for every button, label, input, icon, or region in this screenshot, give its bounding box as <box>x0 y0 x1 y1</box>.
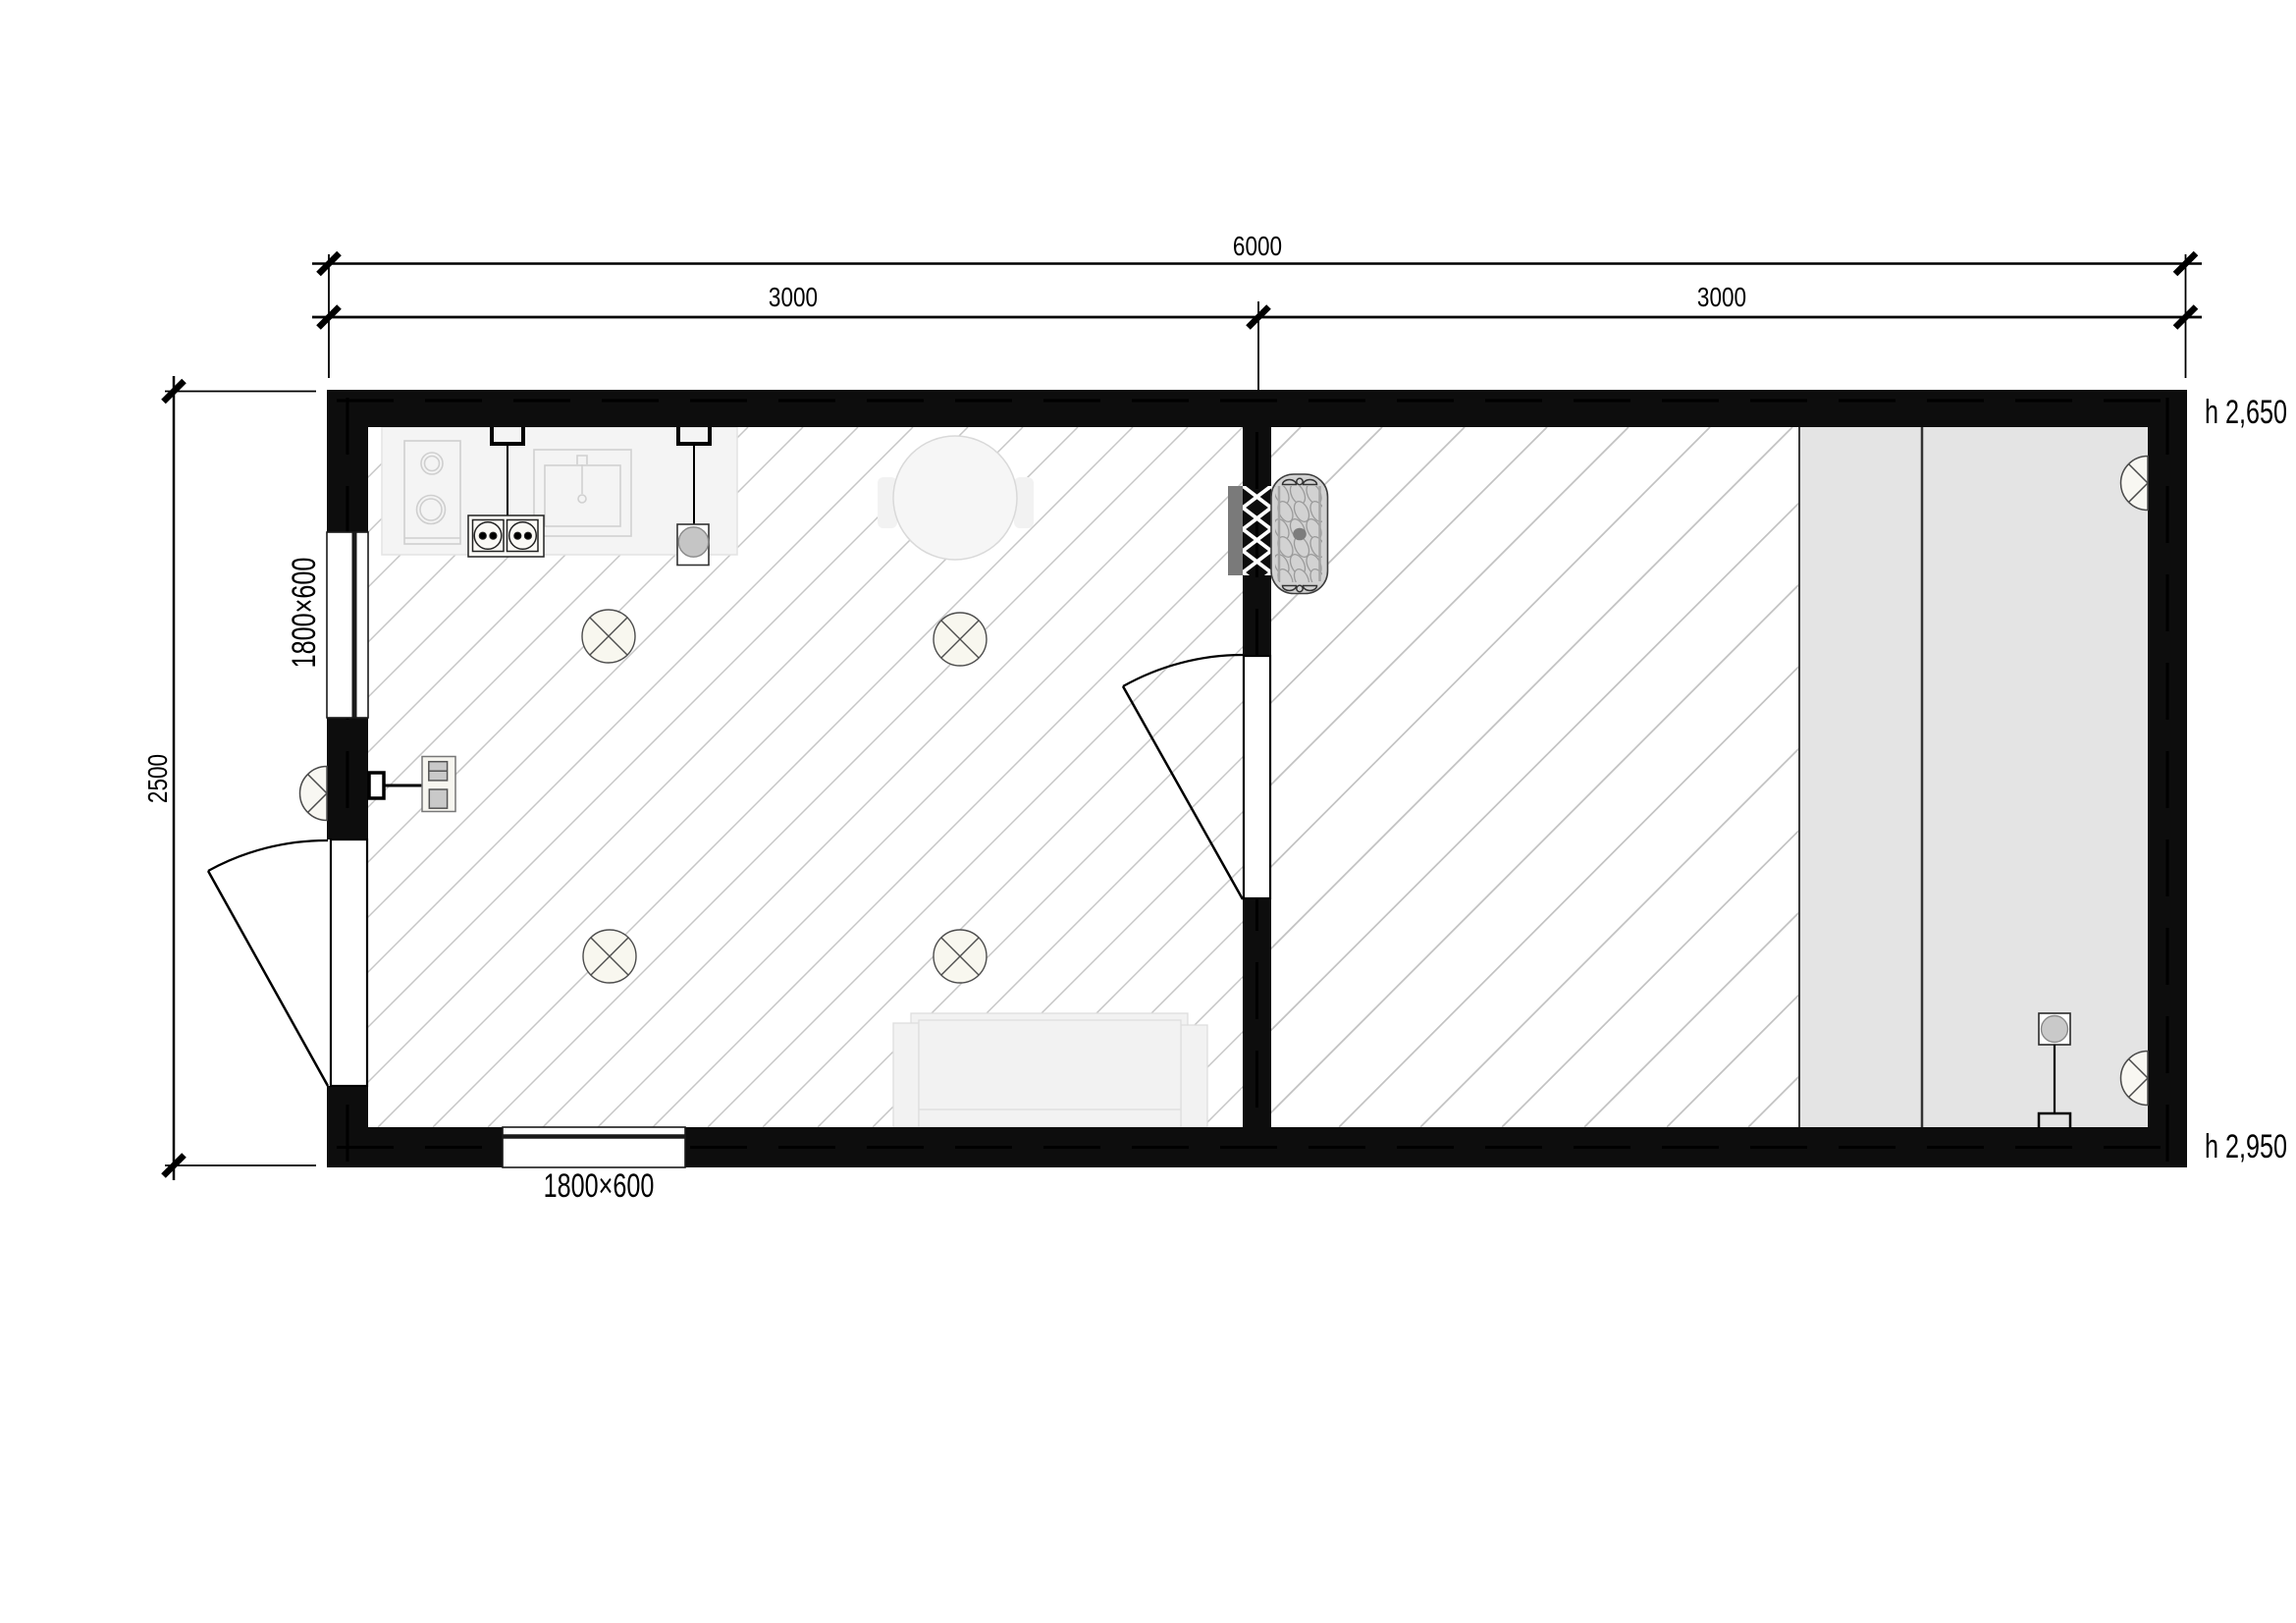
svg-text:h 2,650: h 2,650 <box>2205 394 2287 431</box>
svg-text:2500: 2500 <box>143 754 174 803</box>
svg-text:3000: 3000 <box>769 283 818 313</box>
svg-text:1800×600: 1800×600 <box>286 558 323 669</box>
svg-text:3000: 3000 <box>1697 283 1746 313</box>
svg-text:1800×600: 1800×600 <box>544 1167 655 1205</box>
svg-text:6000: 6000 <box>1233 232 1282 262</box>
svg-text:h 2,950: h 2,950 <box>2205 1128 2287 1165</box>
